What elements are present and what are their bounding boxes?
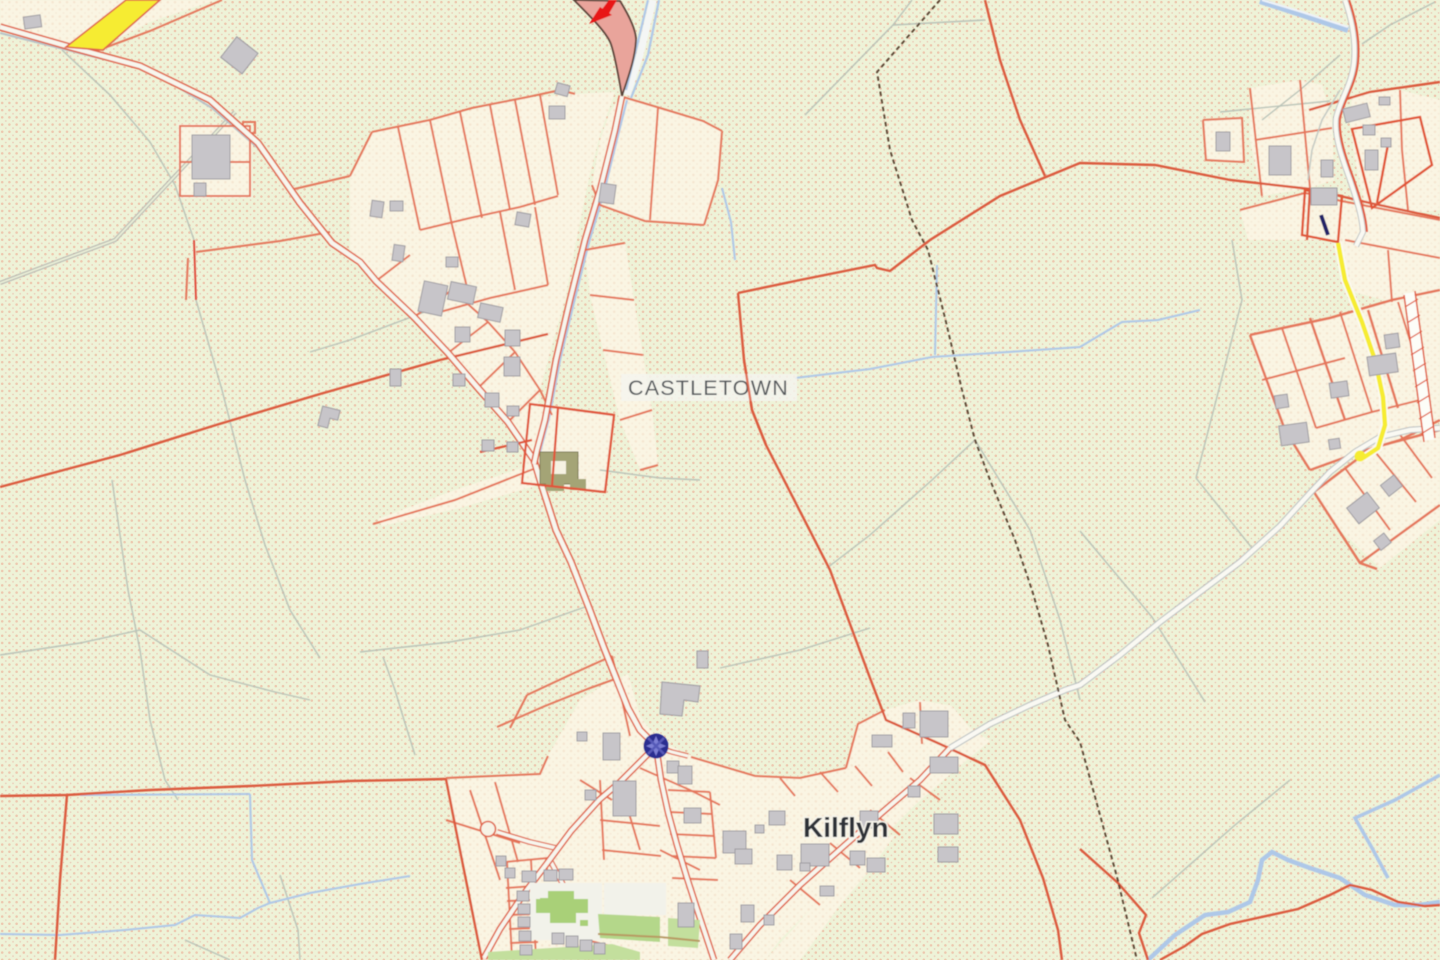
svg-text:Kilflyn: Kilflyn xyxy=(803,812,889,843)
svg-text:CASTLETOWN: CASTLETOWN xyxy=(628,376,789,400)
